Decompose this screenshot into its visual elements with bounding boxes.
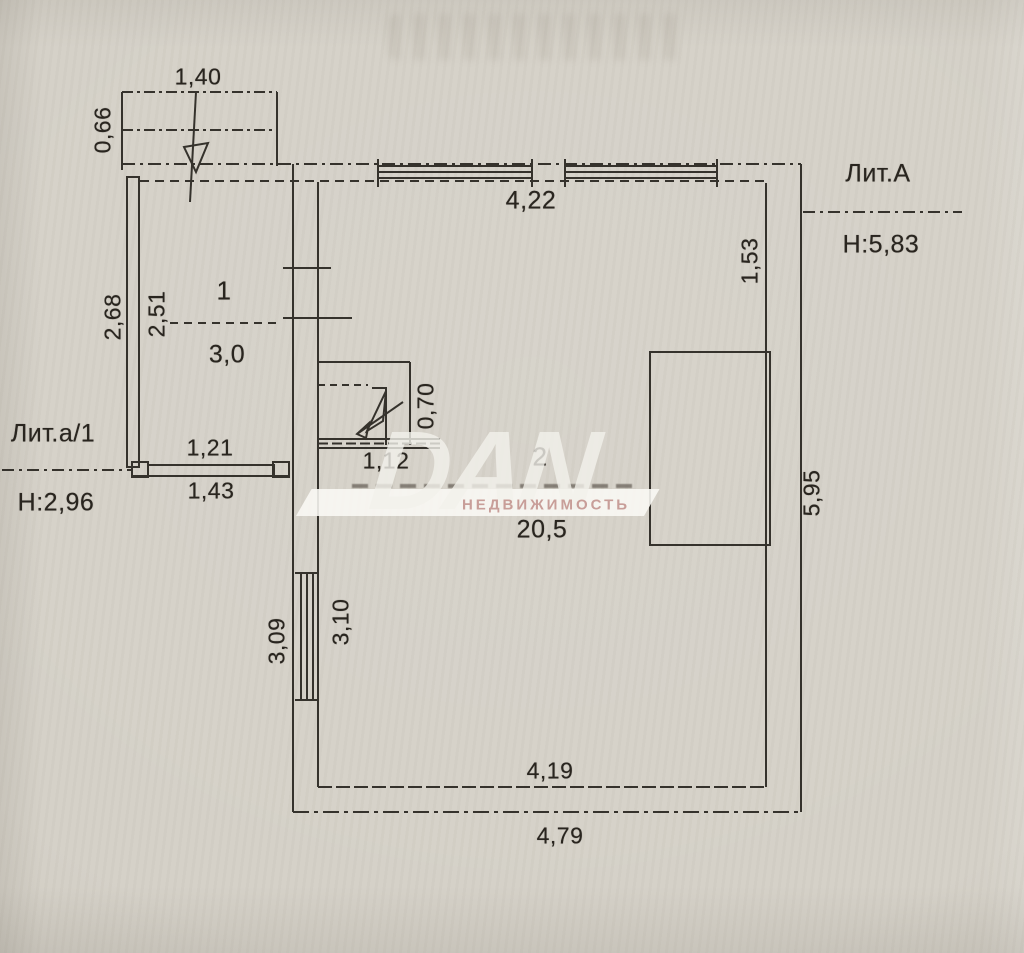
room1-number: 1	[217, 276, 232, 307]
dim-main-bottom-outer: 4,79	[537, 823, 584, 850]
dim-main-bottom-inner: 4,19	[527, 758, 574, 785]
main-right-wall	[766, 164, 801, 812]
dim-annex-width-outer: 1,43	[188, 478, 235, 505]
main-bottom-wall	[293, 787, 801, 812]
annex-bottom-wall	[132, 462, 290, 477]
room1-area: 3,0	[209, 341, 245, 370]
annex-building-label: Лит.а/1	[11, 420, 95, 449]
dim-left-lower-outer: 3,09	[264, 618, 291, 665]
main-building-label: Лит.А	[845, 160, 910, 189]
stove-block	[650, 352, 770, 545]
dim-left-lower-inner: 3,10	[328, 599, 355, 646]
main-left-wall	[283, 164, 352, 812]
dim-annex-width-inner: 1,21	[187, 435, 234, 462]
dim-right-wall-top: 1,53	[737, 238, 764, 285]
main-height-label: Н:5,83	[843, 231, 920, 260]
dim-main-right-height: 5,95	[799, 470, 826, 517]
floorplan-scan-page: 1,40 0,66 2,68 2,51 1 3,0 1,21 1,43 Лит.…	[0, 0, 1024, 953]
entrance-arrow-icon	[184, 92, 208, 202]
annex-height-label: Н:2,96	[18, 489, 95, 518]
annex-left-wall	[127, 177, 139, 467]
dim-porch-depth: 0,66	[90, 107, 117, 154]
porch-outline	[122, 92, 277, 170]
left-window	[295, 573, 318, 700]
dim-annex-height-outer: 2,68	[100, 294, 127, 341]
dim-porch-width: 1,40	[175, 64, 222, 91]
dim-annex-height-inner: 2,51	[144, 291, 171, 338]
dim-main-top-width: 4,22	[506, 187, 557, 216]
watermark-subtitle: НЕДВИЖИМОСТЬ	[462, 497, 630, 514]
